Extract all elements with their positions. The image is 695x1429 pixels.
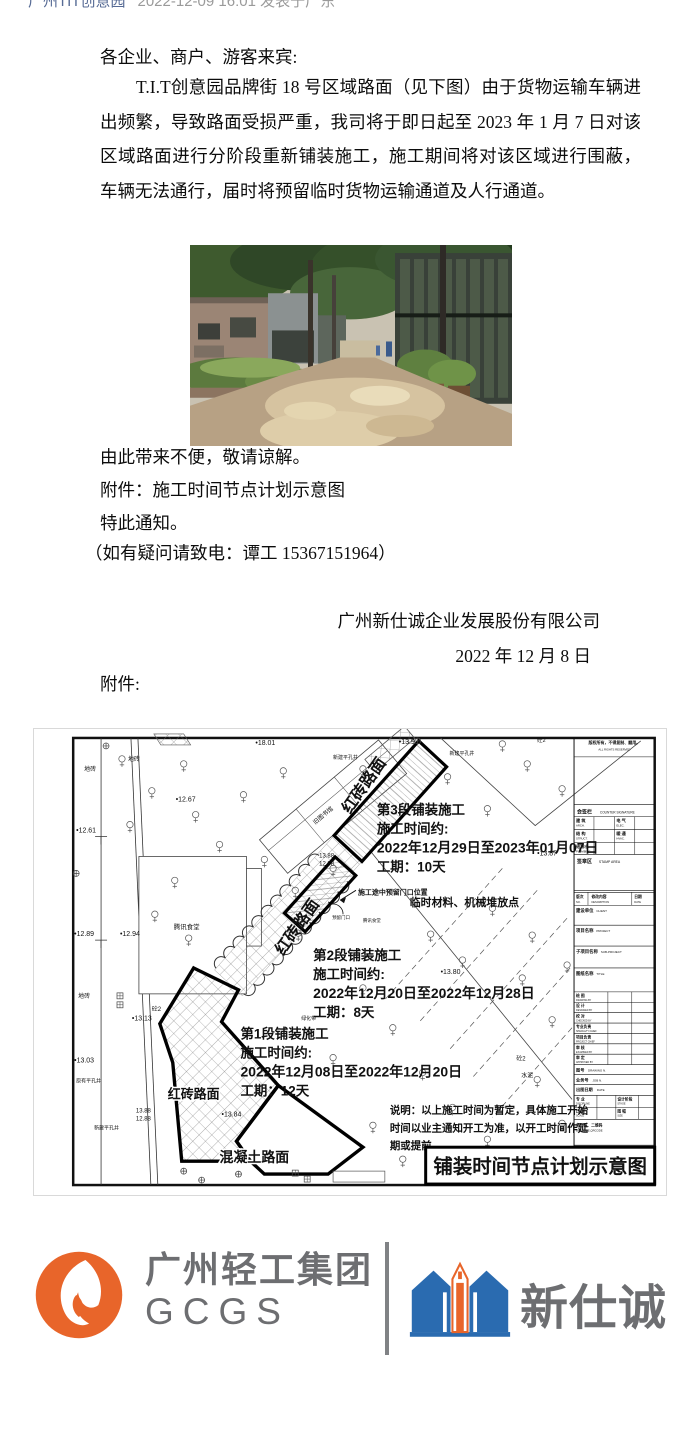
plan-label: 12.88 bbox=[319, 861, 335, 867]
plan-label: DRAWING BY bbox=[576, 999, 592, 1002]
plan-label: SIZE bbox=[617, 1115, 623, 1118]
plan-label: •13.84 bbox=[222, 1111, 242, 1118]
plan-label: ELEC. bbox=[616, 824, 624, 828]
plan-label: 12.88 bbox=[136, 1116, 152, 1122]
plan-label: DRAWING N. bbox=[588, 1068, 606, 1072]
plan-label: 新建平孔井 bbox=[450, 750, 475, 757]
plan-label: STAMP AREA bbox=[599, 860, 621, 864]
plan-label: 图纸名称 bbox=[576, 970, 594, 977]
plan-label: 校 对 bbox=[576, 1014, 585, 1019]
plan-label: 施工时间约: bbox=[377, 821, 449, 837]
gcgs-flame-icon bbox=[33, 1246, 125, 1344]
plan-label: 地砖 bbox=[128, 755, 140, 763]
plan-label: 设计阶段 bbox=[617, 1096, 632, 1101]
plan-label: 腾讯食堂 bbox=[363, 917, 381, 924]
plan-label: 临时材料、机械堆放点 bbox=[410, 895, 519, 909]
plan-label: SUB-PROJECT bbox=[601, 950, 622, 954]
plan-label: ALL RIGHTS RESERVED bbox=[598, 747, 630, 751]
plan-label: 施工时间约: bbox=[240, 1045, 312, 1061]
wechat-article-page: 广州TIT创意园2022-12-09 16:01 发表于广东 各企业、商户、游客… bbox=[0, 0, 695, 1429]
plan-label: 施工途中预留门口位置 bbox=[358, 887, 428, 896]
plan-label: 专 业 bbox=[576, 1096, 585, 1101]
plan-label: •12.67 bbox=[176, 797, 196, 804]
account-name[interactable]: 广州TIT创意园 bbox=[28, 0, 126, 10]
plan-label: HVAC. bbox=[616, 837, 624, 841]
plan-label: 说明：以上施工时间为暂定，具体施工开始 bbox=[390, 1103, 589, 1116]
plan-label: 给排水 bbox=[576, 843, 589, 849]
plan-label: •13.80 bbox=[441, 969, 461, 976]
plan-label: 审 核 bbox=[576, 1045, 585, 1050]
plan-label: 第2段铺装施工 bbox=[313, 947, 402, 963]
plan-label: 工期：8天 bbox=[313, 1005, 375, 1020]
plan-label: 新建平孔井 bbox=[94, 1124, 119, 1131]
plan-label: 新建平孔井 bbox=[333, 754, 358, 761]
plan-label: PLUMBING bbox=[576, 849, 590, 853]
plan-label: 13.88 bbox=[319, 853, 335, 859]
byline: 广州TIT创意园2022-12-09 16:01 发表于广东 bbox=[28, 0, 335, 11]
plan-label: DESIGNED BY bbox=[576, 1009, 593, 1012]
gcgs-name: 广州轻工集团 bbox=[145, 1250, 373, 1290]
plan-label: 版次 bbox=[576, 894, 584, 899]
plan-label: 混凝土路面 bbox=[220, 1149, 290, 1165]
plan-label: 原有平孔井 bbox=[76, 1077, 101, 1084]
plan-label: CHECKED BY bbox=[576, 1020, 592, 1023]
plan-label: APPROVED BY bbox=[576, 1061, 593, 1064]
plan-label: 时间以业主通知开工为准，以开工时间作延 bbox=[390, 1121, 589, 1134]
notice-lines: 由此带来不便，敬请谅解。 附件：施工时间节点计划示意图 特此通知。 bbox=[100, 441, 645, 540]
xsc-building-icon bbox=[408, 1250, 512, 1346]
plan-label: 砼2 bbox=[152, 1005, 162, 1013]
plan-label: 图号 bbox=[576, 1066, 584, 1072]
footer-logos: 广州轻工集团 GCGS 新仕诚 bbox=[0, 1242, 695, 1372]
apology-line: 由此带来不便，敬请谅解。 bbox=[100, 441, 645, 474]
xsc-name: 新仕诚 bbox=[520, 1268, 667, 1338]
salutation: 各企业、商户、游客来宾: bbox=[100, 44, 297, 69]
plan-label: 会签栏 bbox=[576, 809, 592, 816]
plan-label: DESCRIPTION bbox=[591, 900, 609, 904]
plan-label: SCALE bbox=[576, 1115, 584, 1118]
site-photo-illustration bbox=[190, 245, 512, 446]
contact-line: （如有疑问请致电：谭工 15367151964） bbox=[85, 540, 396, 565]
plan-label: PROJECT bbox=[596, 929, 610, 933]
plan-label: 暖 通 bbox=[616, 830, 626, 836]
signature-company: 广州新仕诚企业发展股份有限公司 bbox=[338, 608, 601, 633]
plan-label: •12.94 bbox=[120, 931, 140, 938]
plan-label: TITLE bbox=[596, 972, 604, 976]
plan-label: 工期：12天 bbox=[240, 1083, 309, 1098]
plan-label: 第1段铺装施工 bbox=[240, 1026, 329, 1042]
gcgs-abbr: GCGS bbox=[145, 1290, 373, 1334]
plan-label: 修改内容 bbox=[590, 894, 606, 899]
attachment-label: 附件: bbox=[100, 671, 140, 696]
plan-label: •18.01 bbox=[255, 740, 275, 747]
plan-label: 2022年12月29日至2023年01月07日 bbox=[377, 839, 599, 855]
publish-meta: 2022-12-09 16:01 发表于广东 bbox=[138, 0, 336, 10]
plan-label: 审 定 bbox=[576, 1055, 585, 1060]
plan-label: 工期：10天 bbox=[377, 859, 446, 874]
plan-label: •12.61 bbox=[76, 828, 96, 835]
plan-label: 结 构 bbox=[575, 830, 586, 836]
plan-label: COUNTER SIGNATURE bbox=[600, 811, 635, 815]
construction-plan-diagram[interactable]: •18.01地砖地砖地砖砼2•13.9新建平孔井新建平孔井•12.67•12.6… bbox=[33, 728, 667, 1196]
attachment-line: 附件：施工时间节点计划示意图 bbox=[100, 474, 645, 507]
site-photo[interactable] bbox=[190, 245, 512, 446]
plan-label: 日期 bbox=[634, 894, 642, 899]
plan-label: 地砖 bbox=[84, 765, 96, 773]
plan-label: 绘 图 bbox=[576, 993, 585, 998]
plan-label: DISCIPLINE bbox=[576, 1103, 590, 1106]
plan-label: •13.9 bbox=[399, 739, 415, 746]
plan-label: STAGE bbox=[617, 1103, 626, 1106]
plan-label: 签章区 bbox=[576, 858, 592, 865]
plan-label: •13.13 bbox=[132, 1016, 152, 1023]
plan-label: 设 计 bbox=[576, 1003, 585, 1008]
plan-label: 13.88 bbox=[136, 1108, 152, 1114]
plan-label: 2022年12月08日至2022年12月20日 bbox=[240, 1064, 462, 1080]
plan-label: DATE bbox=[597, 1088, 605, 1092]
plan-label: SPECIALTY CHIEF bbox=[576, 1030, 597, 1033]
plan-label: 砼2 bbox=[516, 1055, 526, 1063]
plan-label: BARCODE,QRCODE bbox=[576, 1128, 603, 1132]
plan-label: 项目名称 bbox=[576, 927, 594, 934]
plan-label: 2022年12月20日至2022年12月28日 bbox=[313, 985, 535, 1001]
plan-label: 建设单位 bbox=[576, 907, 594, 914]
plan-label: 预留门口 bbox=[332, 914, 350, 921]
plan-label: 条形码、二维码 bbox=[575, 1122, 603, 1127]
plan-label: NO. bbox=[576, 900, 581, 904]
logo-divider bbox=[385, 1242, 389, 1355]
plan-label: PROJECT CHIEF bbox=[576, 1040, 595, 1043]
plan-label: 子项目名称 bbox=[576, 948, 598, 955]
plan-label: 专业负责 bbox=[576, 1024, 591, 1029]
plan-label: DATE bbox=[634, 900, 641, 904]
gcgs-wordmark: 广州轻工集团 GCGS bbox=[145, 1250, 373, 1334]
plan-label: STRUCT. bbox=[576, 837, 588, 841]
plan-label: 腾讯食堂 bbox=[174, 922, 200, 931]
plan-label: 版权所有，不得复制、翻用。 bbox=[589, 740, 641, 745]
plan-label: CLIENT bbox=[596, 909, 607, 913]
plan-label: 图 幅 bbox=[617, 1108, 626, 1113]
plan-label: ARCH. bbox=[576, 824, 585, 828]
signature-date: 2022 年 12 月 8 日 bbox=[455, 643, 591, 668]
plan-title: 铺装时间节点计划示意图 bbox=[433, 1155, 646, 1178]
notice-paragraph: T.I.T创意园品牌街 18 号区域路面（见下图）由于货物运输车辆进出频繁，导致… bbox=[100, 70, 641, 208]
plan-label: 红砖路面 bbox=[168, 1086, 220, 1101]
plan-label: •12.89 bbox=[74, 931, 94, 938]
plan-label: 项目负责 bbox=[575, 1034, 591, 1039]
plan-label: 业务号 bbox=[576, 1076, 589, 1082]
plan-label: 地砖 bbox=[78, 992, 90, 1000]
plan-label: 水泥 bbox=[521, 1072, 533, 1080]
plan-label: 电 气 bbox=[616, 817, 626, 823]
notice-line: 特此通知。 bbox=[100, 507, 645, 540]
plan-label: 砼2 bbox=[537, 736, 546, 744]
plan-label: 第3段铺装施工 bbox=[377, 802, 466, 818]
plan-label: 施工时间约: bbox=[313, 966, 385, 982]
plan-label: 比 例 bbox=[576, 1108, 585, 1113]
plan-label: 出图日期 bbox=[576, 1086, 593, 1092]
plan-svg: •18.01地砖地砖地砖砼2•13.9新建平孔井新建平孔井•12.67•12.6… bbox=[34, 729, 666, 1195]
plan-label: EXAMINED BY bbox=[576, 1051, 593, 1054]
plan-label: JOB N. bbox=[592, 1078, 602, 1082]
plan-label: 建 筑 bbox=[575, 817, 586, 823]
plan-label: •13.03 bbox=[74, 1058, 94, 1065]
